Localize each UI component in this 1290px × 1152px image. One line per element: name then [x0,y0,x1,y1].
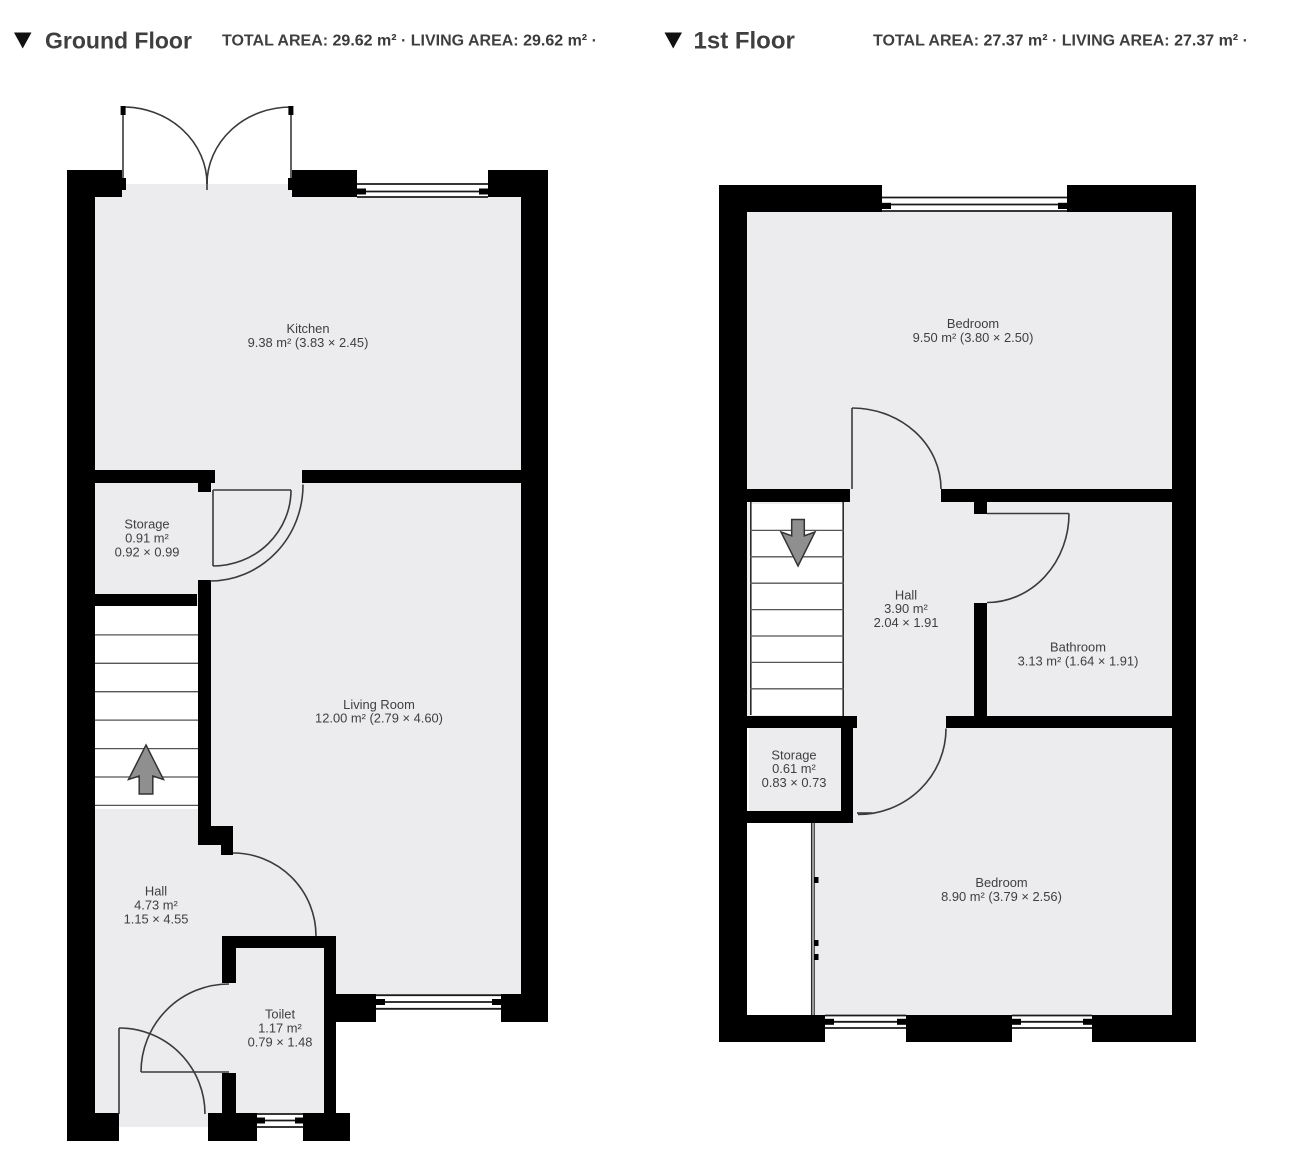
svg-text:1.15 × 4.55: 1.15 × 4.55 [124,911,189,926]
svg-text:Bedroom: Bedroom [975,875,1027,890]
svg-text:TOTAL AREA: 27.37 m² · LIVING: TOTAL AREA: 27.37 m² · LIVING AREA: 27.3… [873,33,1248,50]
svg-text:Storage: Storage [124,517,169,532]
svg-text:0.83 × 0.73: 0.83 × 0.73 [762,775,827,790]
svg-text:Toilet: Toilet [265,1007,296,1022]
svg-text:Bathroom: Bathroom [1050,640,1106,655]
svg-text:4.73 m²: 4.73 m² [134,897,178,912]
svg-text:3.90 m²: 3.90 m² [884,601,928,616]
svg-text:1.17 m²: 1.17 m² [258,1021,302,1036]
svg-text:0.92 × 0.99: 0.92 × 0.99 [115,544,180,559]
svg-text:9.38 m² (3.83 × 2.45): 9.38 m² (3.83 × 2.45) [248,335,369,350]
svg-text:TOTAL AREA: 29.62 m² · LIVING: TOTAL AREA: 29.62 m² · LIVING AREA: 29.6… [222,33,597,50]
svg-text:Kitchen: Kitchen [287,321,330,336]
svg-text:Bedroom: Bedroom [947,316,999,331]
svg-text:Living Room: Living Room [343,697,415,712]
svg-text:0.91 m²: 0.91 m² [125,531,169,546]
svg-text:2.04 × 1.91: 2.04 × 1.91 [874,615,939,630]
svg-text:0.61 m²: 0.61 m² [772,761,816,776]
svg-text:Storage: Storage [771,747,816,762]
svg-text:1st Floor: 1st Floor [694,28,795,55]
svg-text:3.13 m² (1.64 × 1.91): 3.13 m² (1.64 × 1.91) [1018,654,1139,669]
svg-text:Hall: Hall [895,587,917,602]
svg-text:8.90 m² (3.79 × 2.56): 8.90 m² (3.79 × 2.56) [941,889,1062,904]
svg-text:9.50 m² (3.80 × 2.50): 9.50 m² (3.80 × 2.50) [913,330,1034,345]
svg-text:Ground Floor: Ground Floor [45,28,192,54]
svg-text:12.00 m² (2.79 × 4.60): 12.00 m² (2.79 × 4.60) [315,711,443,726]
svg-text:Hall: Hall [145,884,167,899]
svg-text:0.79 × 1.48: 0.79 × 1.48 [248,1034,313,1049]
